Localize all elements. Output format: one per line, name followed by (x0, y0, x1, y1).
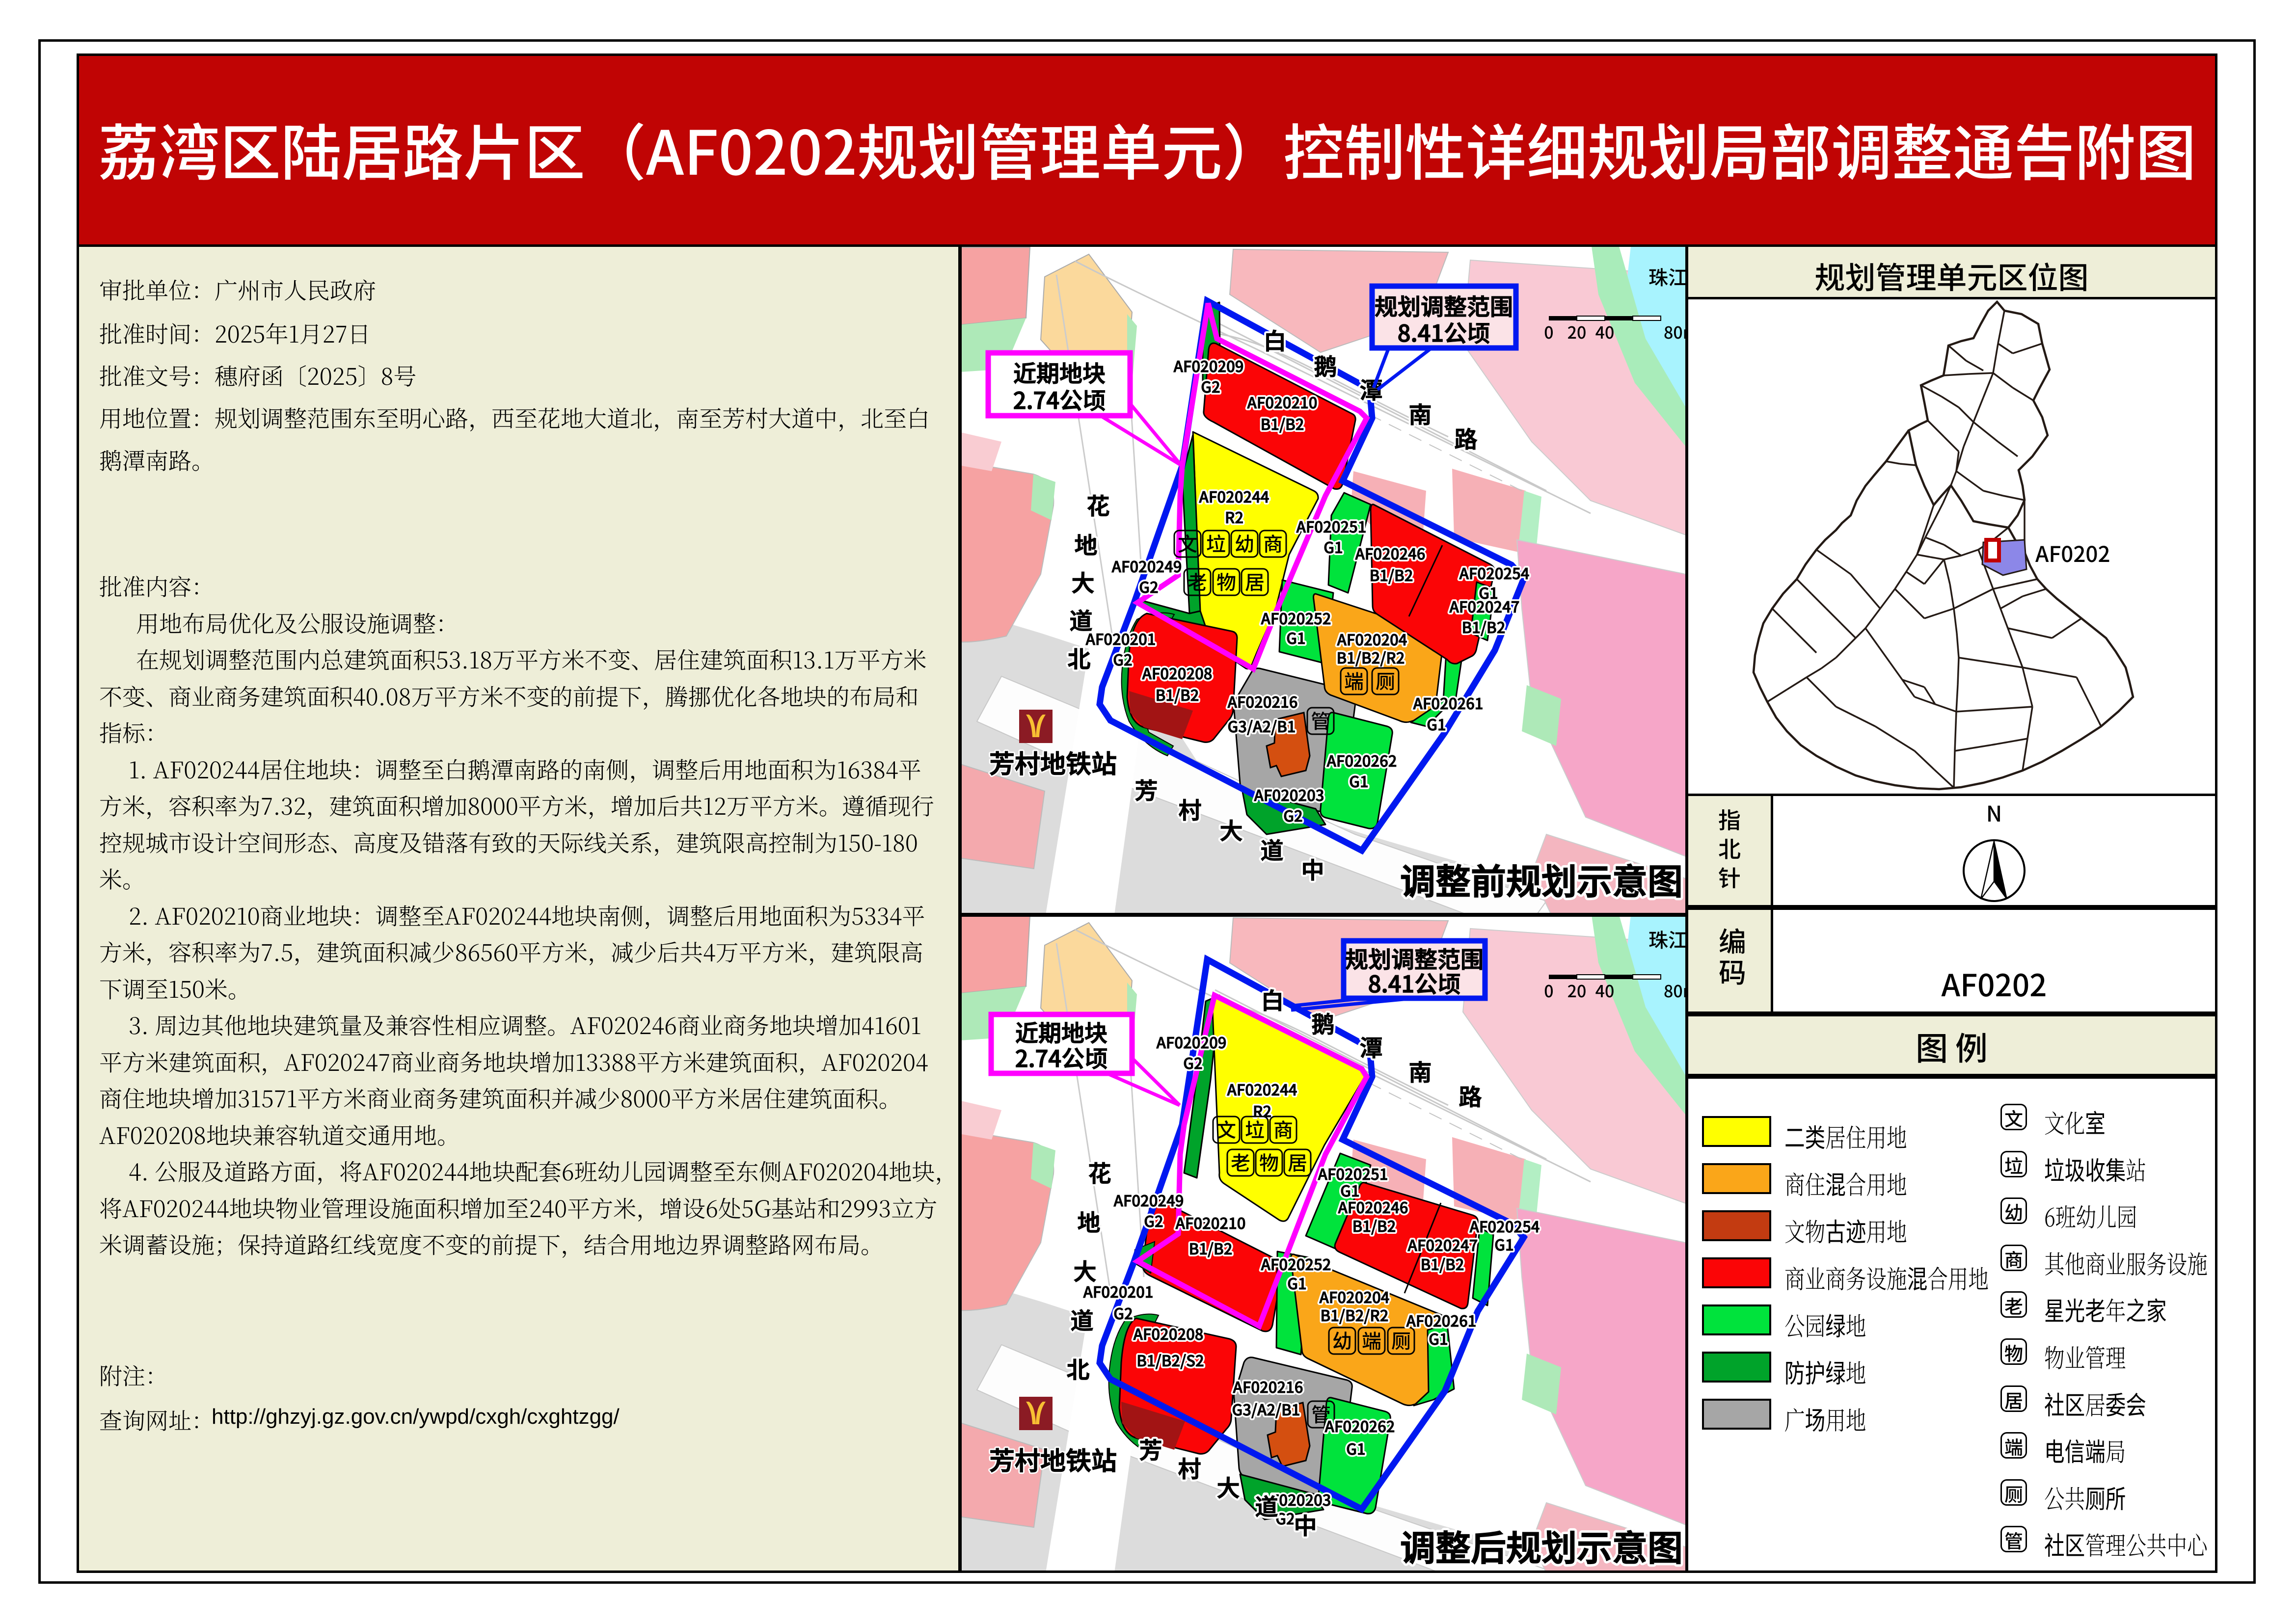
svg-text:AF0202: AF0202 (2035, 537, 2110, 568)
svg-text:N: N (1986, 799, 2002, 828)
